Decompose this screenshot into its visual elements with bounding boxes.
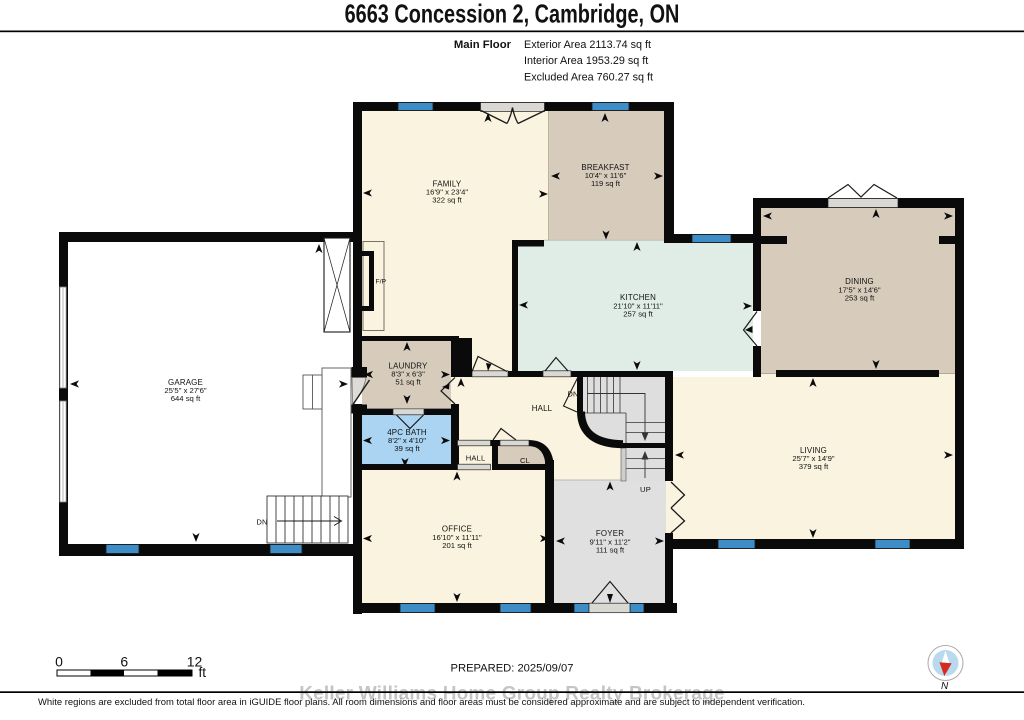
svg-text:N: N (941, 681, 949, 692)
svg-text:CL: CL (520, 456, 530, 465)
svg-text:PREPARED: 2025/09/07: PREPARED: 2025/09/07 (451, 663, 574, 675)
svg-text:0: 0 (55, 654, 63, 670)
svg-text:UP: UP (640, 485, 651, 494)
svg-text:322 sq ft: 322 sq ft (432, 196, 462, 205)
svg-text:HALL: HALL (532, 404, 553, 413)
svg-text:White regions are excluded fro: White regions are excluded from total fl… (38, 697, 805, 708)
svg-text:6663 Concession 2, Cambridge,: 6663 Concession 2, Cambridge, ON (345, 0, 680, 28)
svg-text:39 sq ft: 39 sq ft (394, 444, 420, 453)
svg-text:Main Floor: Main Floor (454, 39, 512, 51)
svg-text:6: 6 (120, 654, 128, 670)
svg-text:HALL: HALL (466, 454, 486, 463)
svg-text:F/P: F/P (376, 279, 387, 286)
svg-text:119 sq ft: 119 sq ft (591, 179, 621, 188)
svg-text:201 sq ft: 201 sq ft (442, 541, 472, 550)
svg-text:Exterior Area 2113.74 sq ft: Exterior Area 2113.74 sq ft (524, 39, 651, 51)
svg-text:DN: DN (567, 390, 578, 399)
svg-text:253 sq ft: 253 sq ft (845, 293, 875, 302)
svg-text:111 sq ft: 111 sq ft (596, 545, 625, 554)
svg-text:51 sq ft: 51 sq ft (395, 378, 421, 387)
svg-text:ft: ft (199, 665, 207, 680)
svg-text:DN: DN (256, 518, 267, 527)
svg-text:Interior Area 1953.29 sq ft: Interior Area 1953.29 sq ft (524, 55, 648, 67)
svg-text:379 sq ft: 379 sq ft (799, 462, 829, 471)
svg-text:644 sq ft: 644 sq ft (171, 394, 201, 403)
svg-text:257 sq ft: 257 sq ft (623, 309, 653, 318)
svg-text:Excluded Area 760.27 sq ft: Excluded Area 760.27 sq ft (524, 71, 653, 83)
